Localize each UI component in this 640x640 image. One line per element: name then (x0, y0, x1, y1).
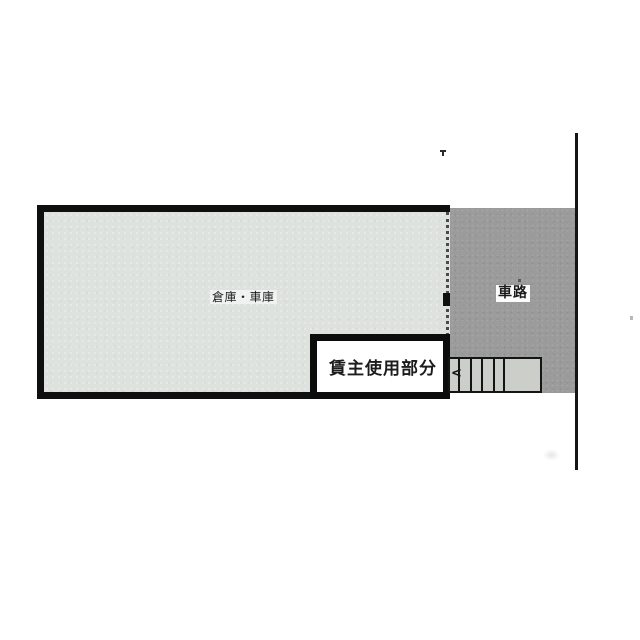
stairs-direction-arrow: < (451, 367, 462, 380)
print-artifact-mark (442, 152, 444, 156)
stair-tread-line (470, 359, 472, 391)
wall-post-marker (443, 293, 450, 306)
stair-tread-line (503, 359, 505, 391)
print-artifact-speck (518, 279, 521, 282)
open-boundary-dotted-line (446, 212, 449, 336)
stair-tread-line (458, 359, 460, 391)
stair-tread-line (493, 359, 495, 391)
print-artifact-speck (630, 316, 633, 320)
stair-tread-line (481, 359, 483, 391)
landlord-use-label: 賃主使用部分 (329, 354, 437, 379)
stairs: < (448, 357, 542, 393)
driveway-label: 車路 (496, 285, 530, 302)
landlord-use-area: 賃主使用部分 (310, 334, 450, 399)
warehouse-garage-label: 倉庫・車庫 (210, 290, 277, 304)
print-artifact-smudge (543, 449, 560, 461)
road-boundary-line (575, 133, 578, 470)
floorplan-canvas: 車路 倉庫・車庫 賃主使用部分 < (0, 0, 640, 640)
